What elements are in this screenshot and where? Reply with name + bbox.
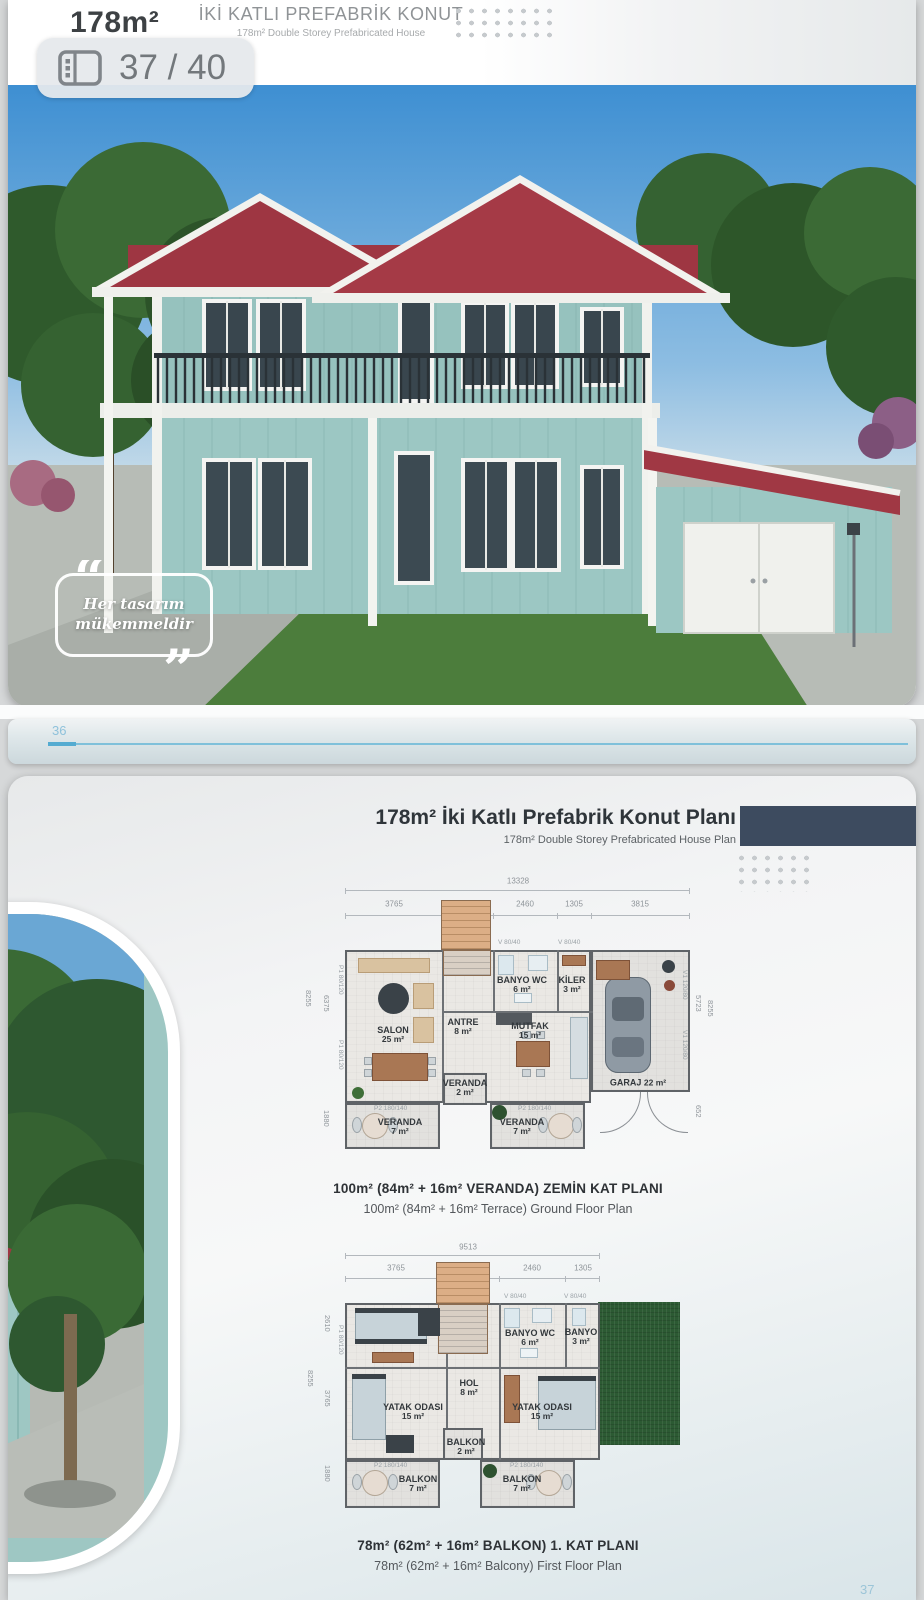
page1-title-block: İKİ KATLI PREFABRİK KONUT 178m² Double S… [186, 4, 476, 39]
first-floor-caption: 78m² (62m² + 16m² BALKON) 1. KAT PLANI 7… [98, 1538, 898, 1573]
dim-left-inner: 6375 [322, 995, 331, 1012]
window-spec-label: V 80/40 [564, 1293, 586, 1300]
page37-number: 37 [860, 1582, 874, 1597]
page2-title: 178m² İki Katlı Prefabrik Konut Planı [375, 806, 736, 830]
page-indicator-pill[interactable]: 37 / 40 [37, 38, 254, 98]
staircase-lower [438, 1304, 488, 1354]
dresser [372, 1352, 414, 1363]
car-rear-window [612, 1037, 644, 1057]
ground-floor-plan: 13328 3765 1982 2460 1305 3815 8255 6375… [300, 865, 716, 1165]
catalog-page-36[interactable]: 178m² İKİ KATLI PREFABRİK KONUT 178m² Do… [8, 0, 916, 707]
kitchen-table [516, 1041, 550, 1067]
quote-box: “ Her tasarım mükemmeldir ” [55, 573, 213, 657]
room-label: KİLER3 m² [559, 975, 586, 995]
shower [498, 955, 514, 975]
window-spec-label: V 80/40 [504, 1293, 526, 1300]
dim-segment: 2460 [523, 1264, 541, 1273]
ground-floor-caption: 100m² (84m² + 16m² VERANDA) ZEMİN KAT PL… [98, 1181, 898, 1216]
doormat [596, 960, 630, 980]
door-spec-label: P2 180/140 [374, 1462, 407, 1469]
room-label: BANYO WC6 m² [497, 975, 547, 995]
room-label: BANYO3 m² [565, 1327, 598, 1347]
shower [504, 1308, 520, 1328]
dim-left-outer: 8255 [306, 1370, 315, 1387]
desk [418, 1308, 440, 1336]
door-spec-label: P2 180/140 [518, 1105, 551, 1112]
patio-table [362, 1470, 388, 1496]
staircase [436, 1262, 490, 1304]
room-label: BANYO WC6 m² [505, 1328, 555, 1348]
open-quote-icon: “ [74, 560, 105, 590]
dim-left-inner: 2610 [323, 1315, 332, 1332]
room-label: ANTRE8 m² [448, 1017, 479, 1037]
side-photo-capsule [8, 902, 180, 1574]
dim-right-inner: 652 [694, 1105, 703, 1118]
room-label: HOL8 m² [460, 1378, 479, 1398]
armchair [413, 1017, 434, 1043]
room-label: SALON25 m² [377, 1025, 409, 1045]
room-label: VERANDA2 m² [443, 1078, 488, 1098]
door-spec-label: P2 180/140 [374, 1105, 407, 1112]
footer-rule [76, 743, 908, 745]
page1-title: İKİ KATLI PREFABRİK KONUT [186, 4, 476, 25]
room-label: YATAK ODASI15 m² [383, 1402, 443, 1422]
patio-table [548, 1113, 574, 1139]
plant [483, 1464, 497, 1478]
window-spec-label: P1 80/120 [337, 1325, 344, 1355]
page36-footer-strip: 36 [8, 719, 916, 764]
footer-rule-accent [48, 742, 76, 746]
dim-left-inner: 1880 [323, 1465, 332, 1482]
dim-segment: 3765 [387, 1264, 405, 1273]
rosette-icon [664, 980, 675, 991]
bathtub [532, 1308, 552, 1323]
sofa [358, 958, 430, 973]
ground-caption-en: 100m² (84m² + 16m² Terrace) Ground Floor… [98, 1202, 898, 1216]
staircase [441, 900, 491, 950]
dim-segment: 3765 [385, 900, 403, 909]
kitchen-cabinets [570, 1017, 588, 1079]
dim-right-inner: 5723 [694, 995, 703, 1012]
house-photo: “ Her tasarım mükemmeldir ” [8, 85, 916, 707]
page-indicator-icon [57, 48, 103, 88]
quote-text: Her tasarım mükemmeldir [58, 594, 210, 635]
dim-left-inner: 3765 [323, 1390, 332, 1407]
ground-caption-tr: 100m² (84m² + 16m² VERANDA) ZEMİN KAT PL… [98, 1181, 898, 1196]
pantry-shelf [562, 955, 586, 966]
first-floor-plan: 9513 3765 1983 2460 1305 8255 2610 3765 … [300, 1240, 716, 1530]
bathtub [528, 955, 548, 971]
car [605, 977, 651, 1073]
window-spec-label: P1 80/120 [337, 1040, 344, 1070]
dim-segment: 2460 [516, 900, 534, 909]
side-photo-graphic [8, 914, 144, 1538]
catalog-page-37[interactable]: 178m² İki Katlı Prefabrik Konut Planı 17… [8, 776, 916, 1600]
dimension-line [345, 915, 690, 916]
title-accent-block [740, 806, 916, 846]
window-spec-label: V1 120/80 [681, 1030, 688, 1060]
window-spec-label: V1 120/80 [681, 970, 688, 1000]
armchair [413, 983, 434, 1009]
close-quote-icon: ” [163, 644, 194, 678]
car-windshield [612, 997, 644, 1021]
page-gap [0, 705, 924, 719]
compass-icon [662, 960, 675, 973]
dot-pattern [452, 5, 556, 43]
plant [352, 1087, 364, 1099]
dim-left-inner: 1880 [322, 1110, 331, 1127]
room-label: GARAJ 22 m² [610, 1078, 666, 1089]
dim-right-outer: 8255 [706, 1000, 715, 1017]
staircase-lower [443, 950, 491, 976]
room-label: MUTFAK15 m² [511, 1021, 549, 1041]
room-label: YATAK ODASI15 m² [512, 1402, 572, 1422]
page2-subtitle: 178m² Double Storey Prefabricated House … [504, 834, 736, 846]
first-caption-tr: 78m² (62m² + 16m² BALKON) 1. KAT PLANI [98, 1538, 898, 1553]
window-spec-label: V 80/40 [498, 939, 520, 946]
first-caption-en: 78m² (62m² + 16m² Balcony) First Floor P… [98, 1559, 898, 1573]
room-label: BALKON7 m² [503, 1474, 542, 1494]
page36-number: 36 [52, 723, 66, 738]
dim-segment: 1305 [565, 900, 583, 909]
room-label: BALKON2 m² [447, 1437, 486, 1457]
garage-roof-green [598, 1302, 680, 1445]
dining-table [372, 1053, 428, 1081]
room-label: BALKON7 m² [399, 1474, 438, 1494]
room-label: VERANDA7 m² [500, 1117, 545, 1137]
window-spec-label: P1 80/120 [337, 965, 344, 995]
dim-segment: 3815 [631, 900, 649, 909]
bed [355, 1312, 427, 1340]
dimension-line [345, 1255, 600, 1256]
dimension-line [345, 890, 690, 891]
door-spec-label: P2 180/140 [510, 1462, 543, 1469]
dim-segment: 1305 [574, 1264, 592, 1273]
page-indicator-text: 37 / 40 [119, 48, 226, 88]
bed [352, 1378, 386, 1440]
desk [386, 1435, 414, 1453]
coffee-table [378, 983, 409, 1014]
viewer-canvas: { "viewer": { "page_indicator": "37 / 40… [0, 0, 924, 1600]
dim-total: 13328 [507, 877, 529, 886]
dim-left-outer: 8255 [304, 990, 313, 1007]
dot-pattern [735, 852, 813, 892]
room-label: VERANDA7 m² [378, 1117, 423, 1137]
area-size-label: 178m² [70, 6, 159, 40]
dim-total: 9513 [459, 1243, 477, 1252]
sink [520, 1348, 538, 1358]
wc [572, 1308, 586, 1326]
window-spec-label: V 80/40 [558, 939, 580, 946]
